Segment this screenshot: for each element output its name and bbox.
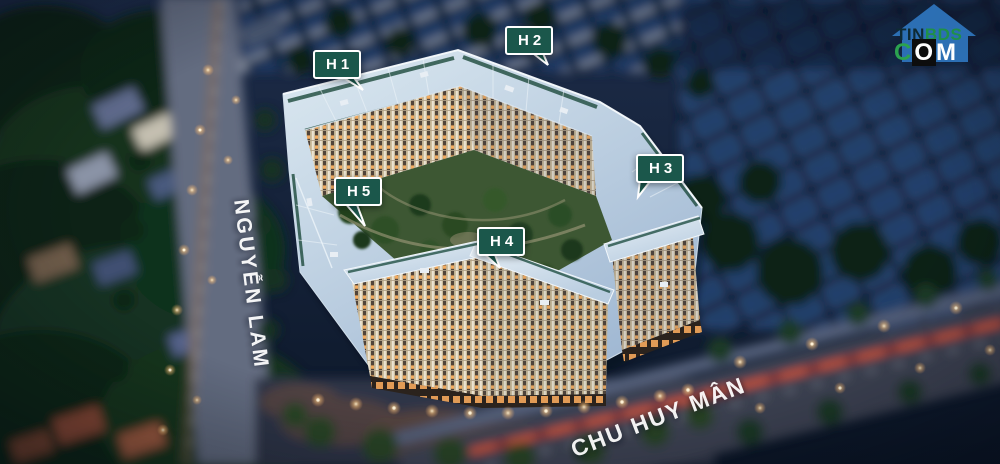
- building-label-h5: H5: [334, 177, 382, 206]
- building-label-h4: H4: [477, 227, 525, 256]
- building-label-h3: H3: [636, 154, 684, 183]
- logo-text-m: M: [936, 39, 957, 66]
- label-pointer-h5: [341, 202, 369, 229]
- logo-text-o: O: [912, 39, 936, 66]
- building-label-h2: H2: [505, 26, 553, 55]
- site-logo: TINBDS COM: [886, 4, 986, 72]
- logo-text-c: C: [894, 39, 912, 66]
- aerial-scene: H1 H2 H3 H4 H5 NGUYỄN LAM CHU HUY MÂN TI…: [0, 0, 1000, 464]
- building-label-h1: H1: [313, 50, 361, 79]
- logo-text-bottom: COM: [894, 41, 957, 65]
